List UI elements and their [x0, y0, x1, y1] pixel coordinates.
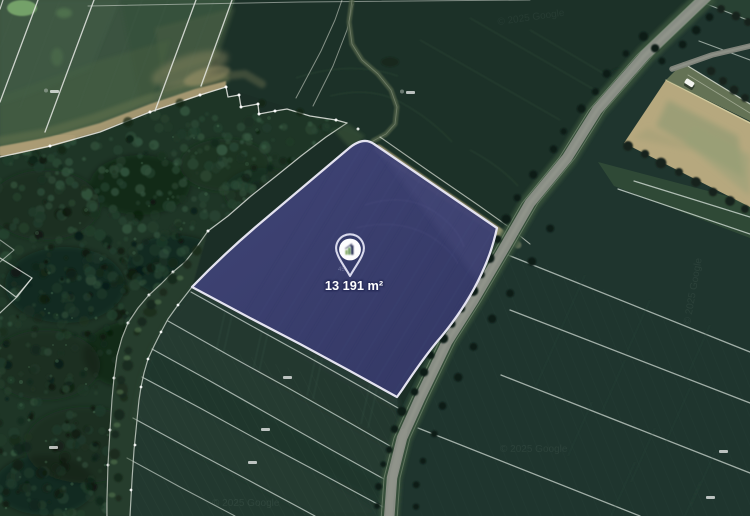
svg-text:© 2025 Google: © 2025 Google — [212, 498, 280, 509]
svg-text:13 191 m²: 13 191 m² — [325, 278, 383, 293]
svg-text:© 2025 Google: © 2025 Google — [500, 444, 568, 455]
